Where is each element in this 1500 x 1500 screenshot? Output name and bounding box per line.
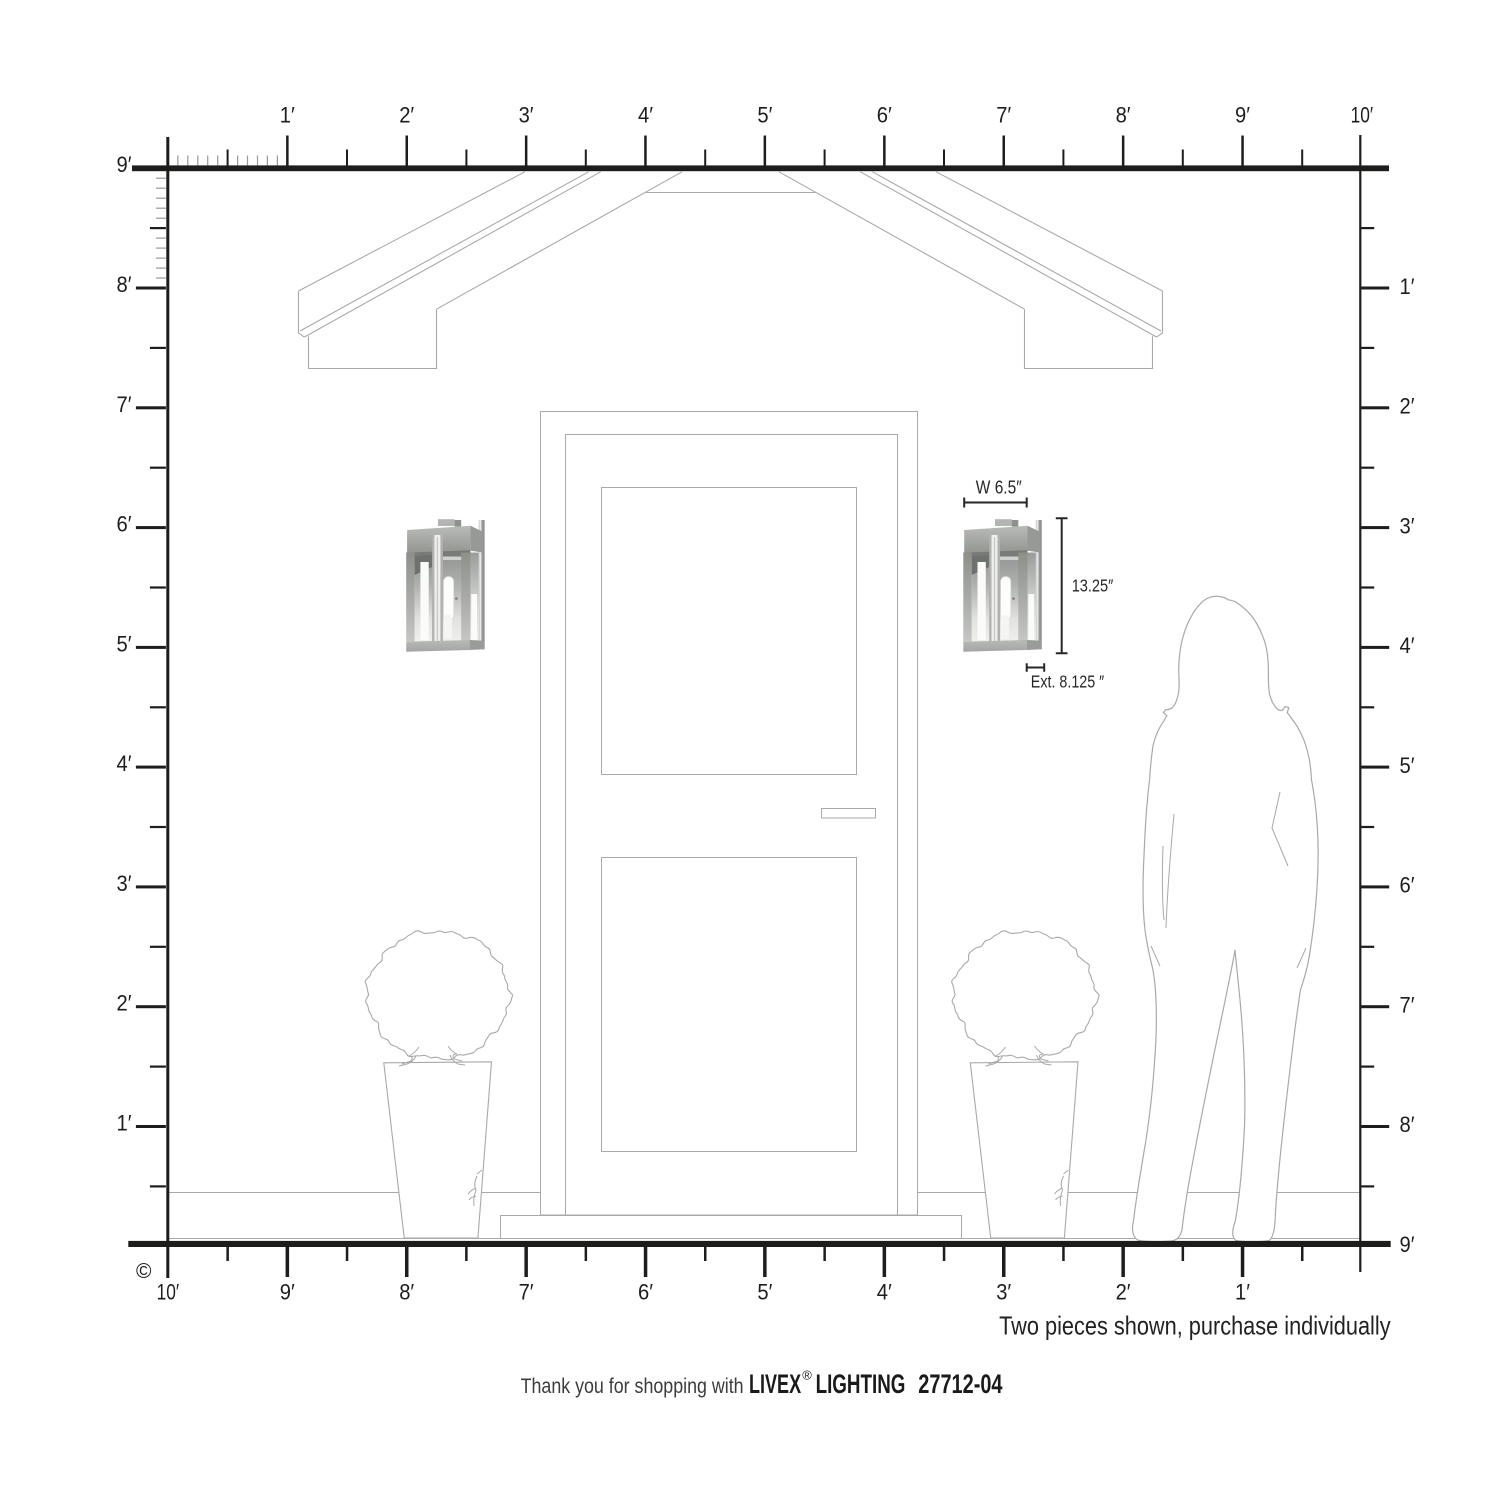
svg-text:2′: 2′ — [117, 991, 132, 1016]
svg-text:3′: 3′ — [996, 1280, 1011, 1305]
svg-text:6′: 6′ — [638, 1280, 653, 1305]
svg-text:8′: 8′ — [1400, 1112, 1415, 1137]
svg-text:®: ® — [802, 1368, 812, 1383]
svg-text:4′: 4′ — [638, 103, 653, 128]
svg-text:LIVEX: LIVEX — [749, 1369, 801, 1399]
svg-text:2′: 2′ — [1116, 1280, 1131, 1305]
svg-text:9′: 9′ — [117, 152, 132, 177]
svg-text:Thank you for shopping with: Thank you for shopping with — [521, 1375, 744, 1398]
svg-text:5′: 5′ — [757, 1280, 772, 1305]
svg-text:9′: 9′ — [1400, 1232, 1415, 1257]
svg-text:13.25″: 13.25″ — [1072, 576, 1114, 596]
svg-text:3′: 3′ — [1400, 513, 1415, 538]
svg-text:2′: 2′ — [399, 103, 414, 128]
svg-text:27712-04: 27712-04 — [918, 1369, 1002, 1399]
svg-text:4′: 4′ — [877, 1280, 892, 1305]
svg-text:6′: 6′ — [1400, 873, 1415, 898]
svg-text:Ext. 8.125 ″: Ext. 8.125 ″ — [1031, 672, 1104, 692]
svg-text:6′: 6′ — [877, 103, 892, 128]
svg-text:1′: 1′ — [280, 103, 295, 128]
svg-text:3′: 3′ — [519, 103, 534, 128]
svg-text:4′: 4′ — [1400, 633, 1415, 658]
svg-text:6′: 6′ — [117, 512, 132, 537]
svg-text:W 6.5″: W 6.5″ — [976, 476, 1022, 497]
svg-text:5′: 5′ — [757, 103, 772, 128]
svg-text:10′: 10′ — [157, 1280, 180, 1305]
svg-text:©: © — [136, 1260, 152, 1283]
svg-text:9′: 9′ — [1235, 103, 1250, 128]
svg-text:1′: 1′ — [1235, 1280, 1250, 1305]
svg-text:3′: 3′ — [117, 871, 132, 896]
svg-text:9′: 9′ — [280, 1280, 295, 1305]
svg-text:4′: 4′ — [117, 751, 132, 776]
svg-text:10′: 10′ — [1351, 103, 1374, 128]
svg-text:5′: 5′ — [1400, 753, 1415, 778]
svg-text:7′: 7′ — [1400, 993, 1415, 1018]
svg-text:Two pieces shown, purchase ind: Two pieces shown, purchase individually — [999, 1311, 1391, 1341]
svg-text:1′: 1′ — [117, 1111, 132, 1136]
svg-text:LIGHTING: LIGHTING — [816, 1369, 906, 1399]
svg-text:7′: 7′ — [996, 103, 1011, 128]
svg-text:8′: 8′ — [399, 1280, 414, 1305]
svg-text:1′: 1′ — [1400, 274, 1415, 299]
svg-text:7′: 7′ — [519, 1280, 534, 1305]
svg-text:8′: 8′ — [1116, 103, 1131, 128]
svg-text:2′: 2′ — [1400, 394, 1415, 419]
svg-text:8′: 8′ — [117, 272, 132, 297]
svg-text:7′: 7′ — [117, 392, 132, 417]
svg-text:5′: 5′ — [117, 631, 132, 656]
